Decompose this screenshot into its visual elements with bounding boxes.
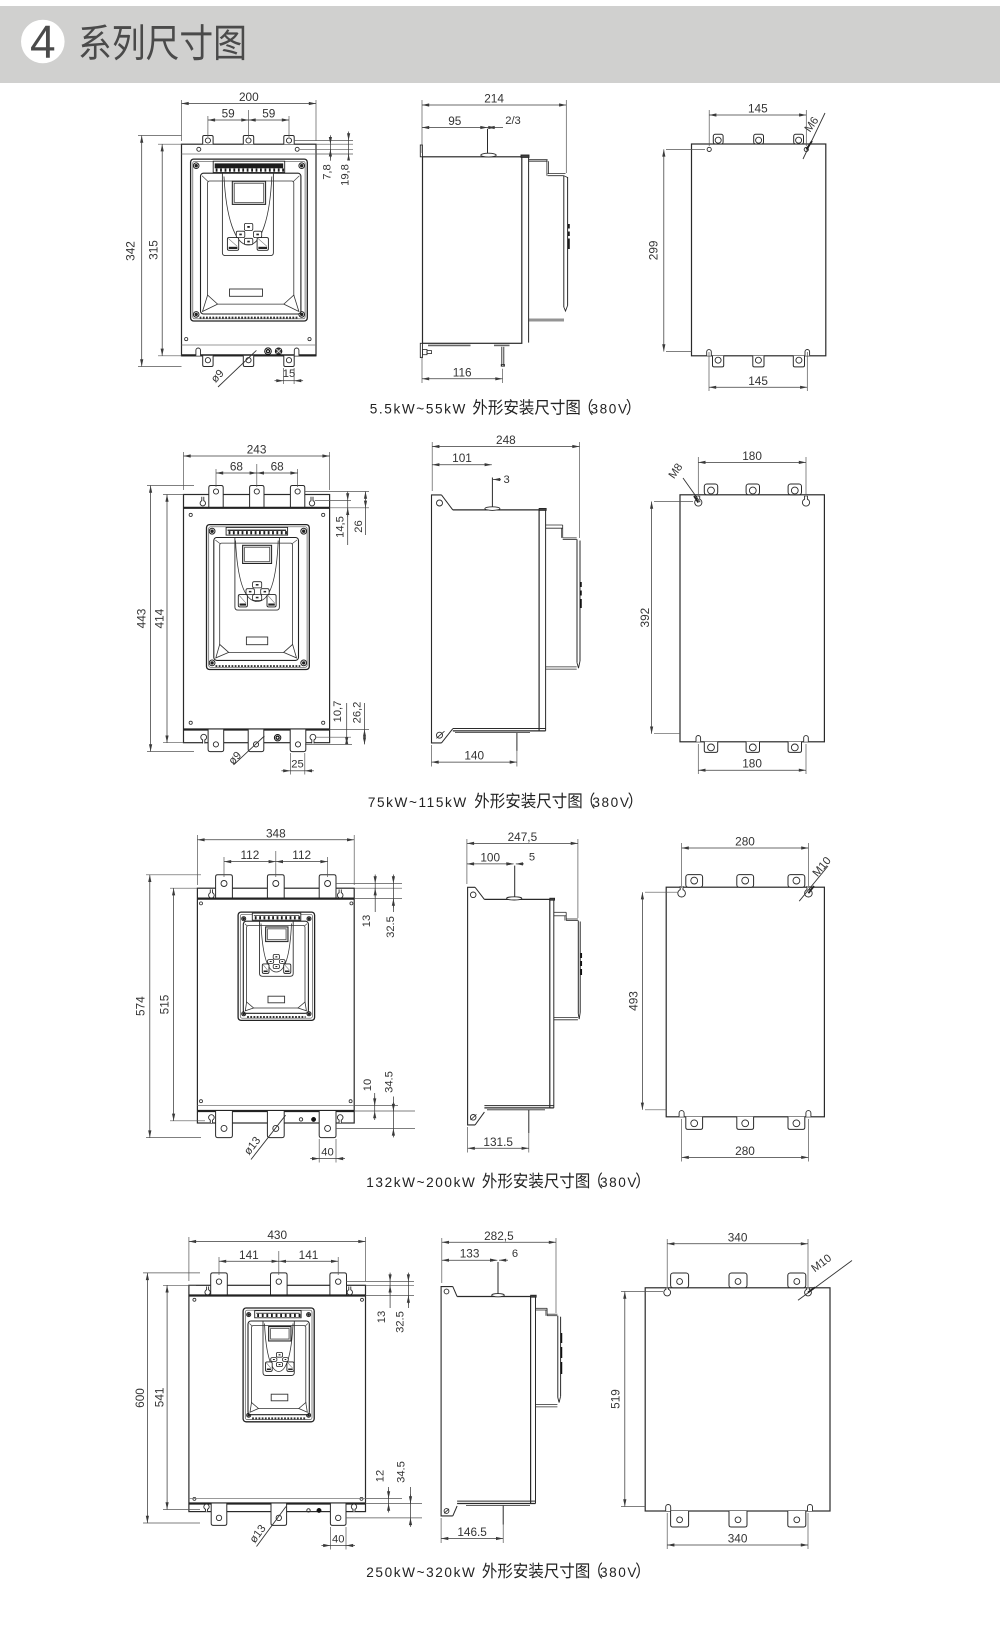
svg-text:430: 430 <box>267 1228 287 1242</box>
svg-text:180: 180 <box>742 449 762 463</box>
svg-text:34.5: 34.5 <box>396 1461 408 1483</box>
svg-text:34.5: 34.5 <box>384 1071 396 1093</box>
svg-text:131.5: 131.5 <box>483 1135 513 1149</box>
svg-text:282,5: 282,5 <box>484 1229 514 1243</box>
svg-text:59: 59 <box>262 107 275 121</box>
svg-text:26: 26 <box>353 520 365 532</box>
svg-text:32.5: 32.5 <box>395 1311 407 1333</box>
svg-text:15: 15 <box>283 368 295 380</box>
svg-text:25: 25 <box>291 759 303 771</box>
svg-text:14,5: 14,5 <box>335 516 347 538</box>
svg-text:100: 100 <box>480 850 500 864</box>
svg-text:340: 340 <box>728 1532 748 1546</box>
svg-text:2/3: 2/3 <box>505 115 521 127</box>
svg-text:146.5: 146.5 <box>457 1525 487 1539</box>
svg-text:574: 574 <box>134 996 148 1016</box>
svg-text:141: 141 <box>299 1248 319 1262</box>
svg-text:380V: 380V <box>590 402 628 417</box>
svg-text:133: 133 <box>460 1247 480 1261</box>
svg-text:101: 101 <box>452 451 472 465</box>
svg-text:40: 40 <box>321 1147 333 1159</box>
svg-text:75kW~115kW: 75kW~115kW <box>368 795 468 810</box>
svg-text:68: 68 <box>230 460 244 474</box>
svg-text:13: 13 <box>376 1311 388 1323</box>
svg-text:600: 600 <box>133 1388 147 1408</box>
svg-text:443: 443 <box>135 608 149 628</box>
svg-text:3: 3 <box>504 474 510 486</box>
svg-text:380V: 380V <box>600 1175 638 1190</box>
svg-text:40: 40 <box>332 1534 344 1546</box>
svg-text:519: 519 <box>609 1389 623 1409</box>
svg-text:4: 4 <box>30 16 56 68</box>
svg-text:5: 5 <box>529 852 535 864</box>
svg-text:250kW~320kW: 250kW~320kW <box>366 1565 476 1580</box>
svg-text:12: 12 <box>375 1470 387 1482</box>
svg-text:541: 541 <box>153 1388 167 1408</box>
svg-text:414: 414 <box>153 608 167 628</box>
svg-text:342: 342 <box>124 241 138 261</box>
svg-text:59: 59 <box>222 107 235 121</box>
svg-text:180: 180 <box>742 757 762 771</box>
svg-text:6: 6 <box>512 1248 518 1260</box>
svg-text:145: 145 <box>748 102 768 116</box>
svg-text:380V: 380V <box>592 795 630 810</box>
svg-text:214: 214 <box>484 92 504 106</box>
svg-text:145: 145 <box>748 374 768 388</box>
svg-text:200: 200 <box>239 90 259 104</box>
svg-text:340: 340 <box>728 1230 748 1244</box>
svg-text:299: 299 <box>647 241 661 261</box>
svg-text:13: 13 <box>361 915 373 927</box>
svg-text:5.5kW~55kW: 5.5kW~55kW <box>370 402 467 417</box>
svg-text:112: 112 <box>240 848 259 862</box>
svg-text:280: 280 <box>735 835 755 849</box>
svg-text:515: 515 <box>158 994 172 1014</box>
svg-text:112: 112 <box>292 848 311 862</box>
svg-text:493: 493 <box>626 991 640 1011</box>
svg-text:380V: 380V <box>600 1565 638 1580</box>
svg-text:248: 248 <box>496 433 516 447</box>
svg-text:10: 10 <box>362 1079 374 1091</box>
svg-text:32.5: 32.5 <box>385 916 397 938</box>
svg-text:19,8: 19,8 <box>340 164 352 186</box>
svg-text:392: 392 <box>638 608 652 628</box>
svg-text:141: 141 <box>239 1248 259 1262</box>
svg-text:243: 243 <box>247 443 267 457</box>
svg-text:315: 315 <box>147 240 161 260</box>
svg-text:10,7: 10,7 <box>332 701 344 723</box>
svg-text:26,2: 26,2 <box>351 702 363 724</box>
svg-text:140: 140 <box>464 749 484 763</box>
svg-text:280: 280 <box>735 1144 755 1158</box>
svg-text:116: 116 <box>453 365 472 379</box>
svg-text:95: 95 <box>448 114 462 128</box>
svg-text:348: 348 <box>266 826 286 840</box>
svg-text:7,8: 7,8 <box>321 164 333 180</box>
svg-text:68: 68 <box>271 460 285 474</box>
svg-text:132kW~200kW: 132kW~200kW <box>366 1175 476 1190</box>
svg-text:247,5: 247,5 <box>508 830 538 844</box>
